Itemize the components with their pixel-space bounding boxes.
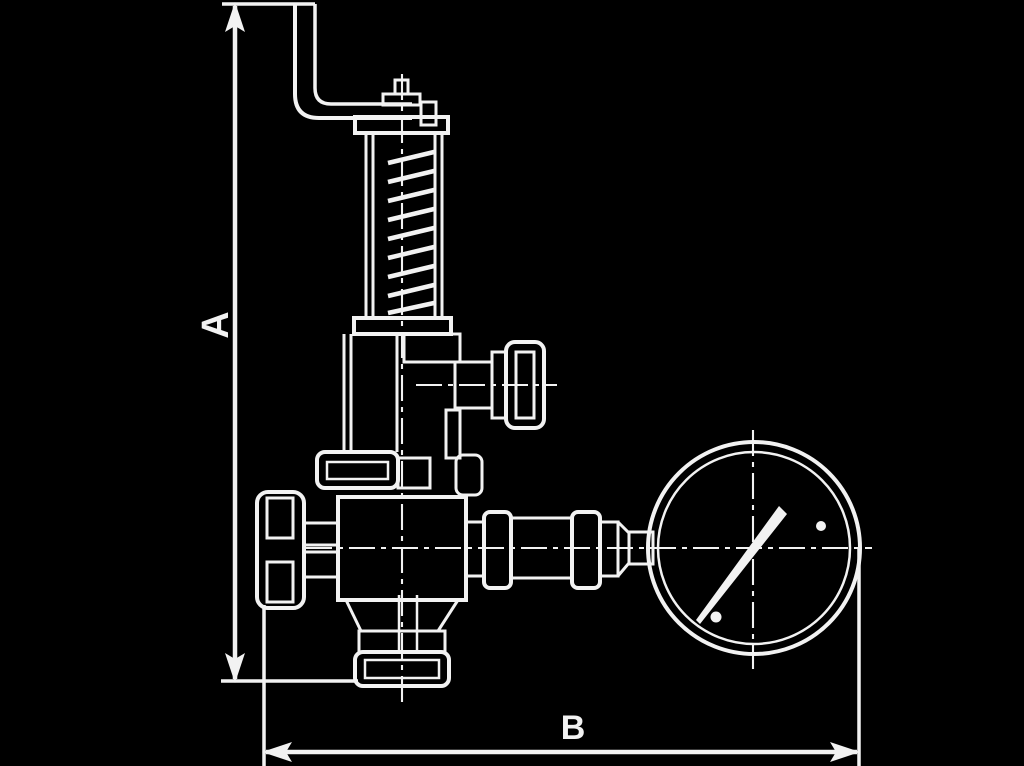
handwheel-rim	[257, 492, 304, 608]
inlet-handwheel	[257, 492, 338, 608]
outlet-taper-left	[346, 600, 361, 631]
right-duct	[446, 410, 460, 458]
spring-coils	[388, 152, 434, 313]
right-boss	[456, 455, 482, 495]
lever-arm	[295, 4, 412, 118]
valve-with-gauge-drawing: A B	[0, 0, 1024, 766]
union-nut-1	[484, 512, 511, 588]
dimension-b-label: B	[561, 709, 586, 747]
side-cap	[421, 102, 436, 125]
outlet-taper-right	[438, 600, 458, 631]
gauge-dial-screw-left	[711, 612, 722, 623]
handwheel-window-bottom	[267, 562, 293, 602]
valve-assembly	[257, 4, 860, 686]
technical-drawing-canvas: A B	[0, 0, 1024, 766]
bonnet-union-nut	[317, 452, 482, 495]
dimension-a-label: A	[195, 311, 237, 338]
gauge-needle	[696, 506, 787, 624]
upper-right-block	[404, 334, 460, 362]
dimension-b: B	[262, 547, 860, 766]
handwheel-window-top	[267, 498, 293, 538]
centerlines	[306, 74, 872, 702]
gauge-dial-screw-right	[816, 521, 826, 531]
union-nut-2	[572, 512, 600, 588]
gauge-piping	[466, 512, 653, 588]
